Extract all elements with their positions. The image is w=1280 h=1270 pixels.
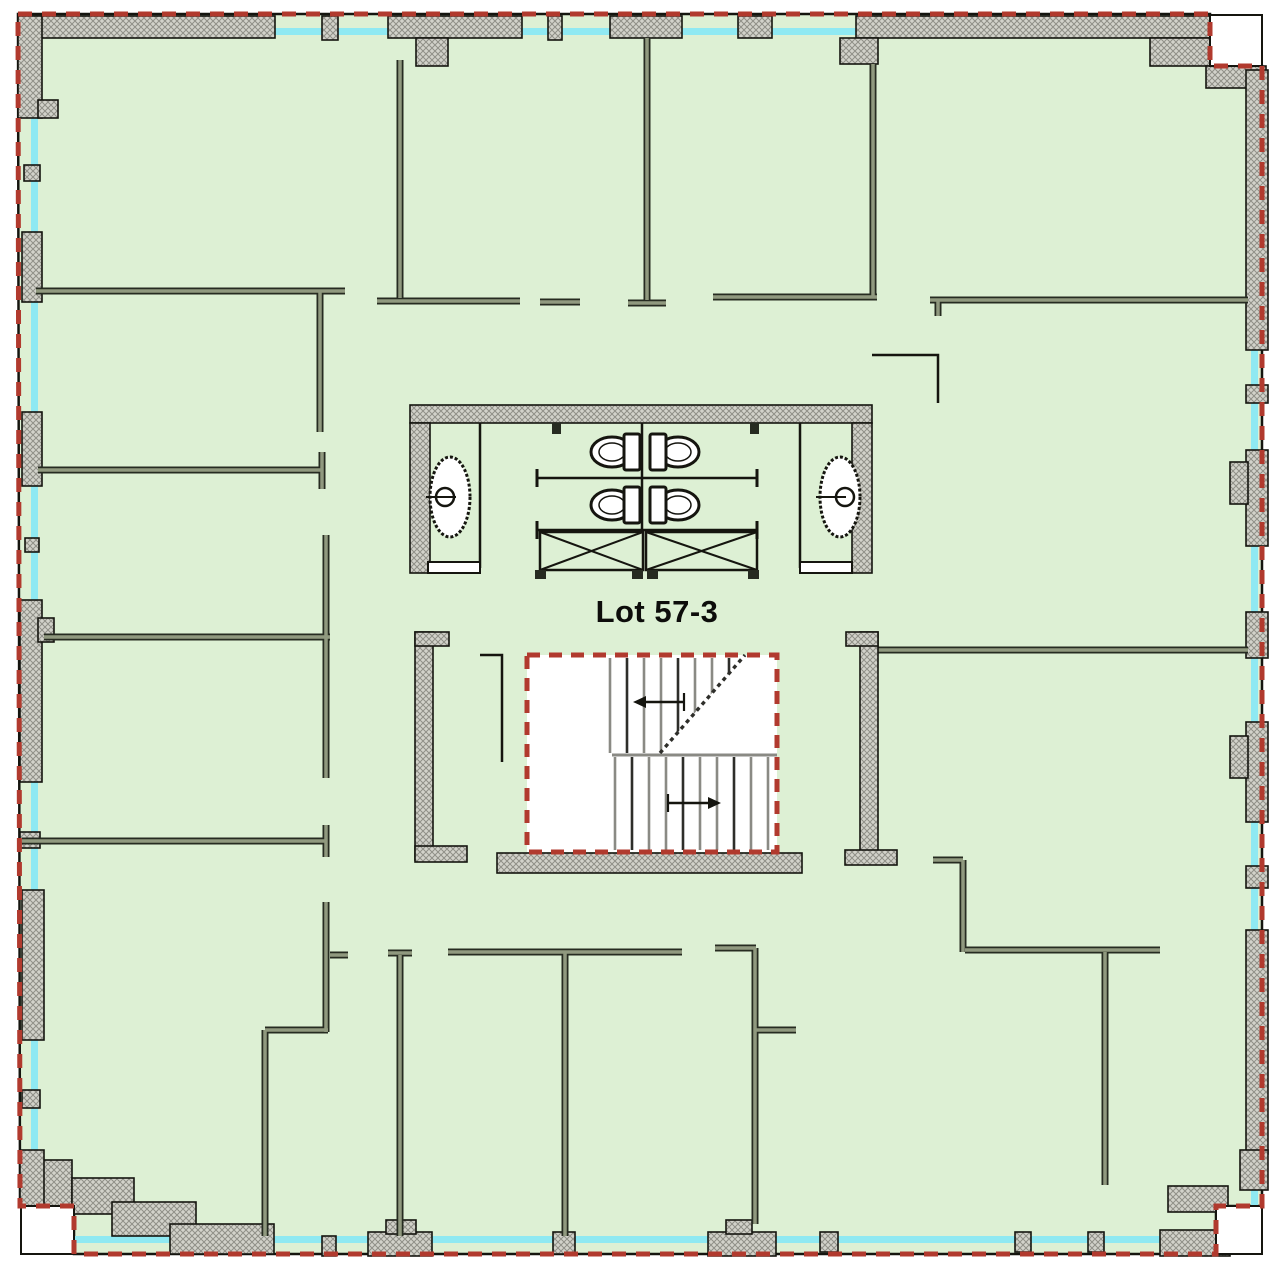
exterior-wall-pier bbox=[1088, 1232, 1104, 1252]
exterior-wall-pier bbox=[726, 1220, 752, 1234]
exterior-wall-pier bbox=[322, 16, 338, 40]
exterior-wall-pier bbox=[548, 16, 562, 40]
exterior-wall-pier bbox=[1150, 38, 1212, 66]
exterior-wall-pier bbox=[170, 1224, 274, 1254]
exterior-wall-pier bbox=[22, 412, 42, 486]
counter-foot bbox=[632, 570, 643, 579]
exterior-wall-pier bbox=[18, 16, 275, 38]
exterior-wall-pier bbox=[738, 16, 772, 38]
toilet-bowl-inner bbox=[665, 496, 691, 514]
restroom-wall-cap bbox=[428, 562, 480, 573]
exterior-wall-pier bbox=[38, 100, 58, 118]
restroom-wall-cap bbox=[800, 562, 852, 573]
exterior-wall-pier bbox=[1246, 70, 1268, 350]
door-stub bbox=[750, 423, 759, 434]
exterior-wall-pier bbox=[416, 38, 448, 66]
exterior-wall-pier bbox=[22, 890, 44, 1040]
exterior-wall-pier bbox=[1246, 450, 1268, 546]
stairwell bbox=[527, 655, 777, 852]
exterior-wall-pier bbox=[610, 16, 682, 38]
lot-label: Lot 57-3 bbox=[572, 594, 742, 630]
toilet-bowl-inner bbox=[599, 443, 625, 461]
corner-notch bbox=[21, 1206, 74, 1254]
core-wall bbox=[410, 405, 872, 423]
floor-plan-svg bbox=[0, 0, 1280, 1270]
toilet-tank bbox=[624, 487, 640, 523]
core-wall bbox=[415, 632, 433, 860]
corner-notch bbox=[1210, 15, 1262, 66]
toilet-tank bbox=[650, 434, 666, 470]
toilet-tank bbox=[624, 434, 640, 470]
exterior-wall-pier bbox=[820, 1232, 838, 1252]
exterior-wall-pier bbox=[20, 1150, 44, 1206]
exterior-wall-pier bbox=[22, 1090, 40, 1108]
exterior-wall-pier bbox=[1015, 1232, 1031, 1252]
core-wall bbox=[845, 850, 897, 865]
exterior-wall-pier bbox=[840, 38, 878, 64]
exterior-wall-pier bbox=[24, 165, 40, 181]
door-stub bbox=[552, 423, 561, 434]
core-wall bbox=[860, 632, 878, 856]
exterior-wall-pier bbox=[1230, 462, 1248, 504]
exterior-wall-pier bbox=[25, 538, 39, 552]
toilet-tank bbox=[650, 487, 666, 523]
counter-foot bbox=[535, 570, 546, 579]
toilet-bowl-inner bbox=[665, 443, 691, 461]
exterior-wall-pier bbox=[1246, 866, 1268, 888]
counter-foot bbox=[647, 570, 658, 579]
exterior-wall-pier bbox=[1246, 612, 1268, 658]
corner-notch bbox=[1216, 1206, 1262, 1254]
exterior-wall-pier bbox=[1246, 722, 1268, 822]
core-wall bbox=[846, 632, 878, 646]
core-wall bbox=[497, 853, 802, 873]
floor-plan: Lot 57-3 bbox=[0, 0, 1280, 1270]
exterior-wall-pier bbox=[1246, 385, 1268, 403]
toilet-bowl-inner bbox=[599, 496, 625, 514]
core-wall bbox=[415, 846, 467, 862]
exterior-wall-pier bbox=[856, 16, 1212, 38]
counter-foot bbox=[748, 570, 759, 579]
exterior-wall-pier bbox=[1230, 736, 1248, 778]
core-wall bbox=[415, 632, 449, 646]
exterior-wall-pier bbox=[388, 16, 522, 38]
exterior-wall-pier bbox=[1246, 930, 1268, 1154]
